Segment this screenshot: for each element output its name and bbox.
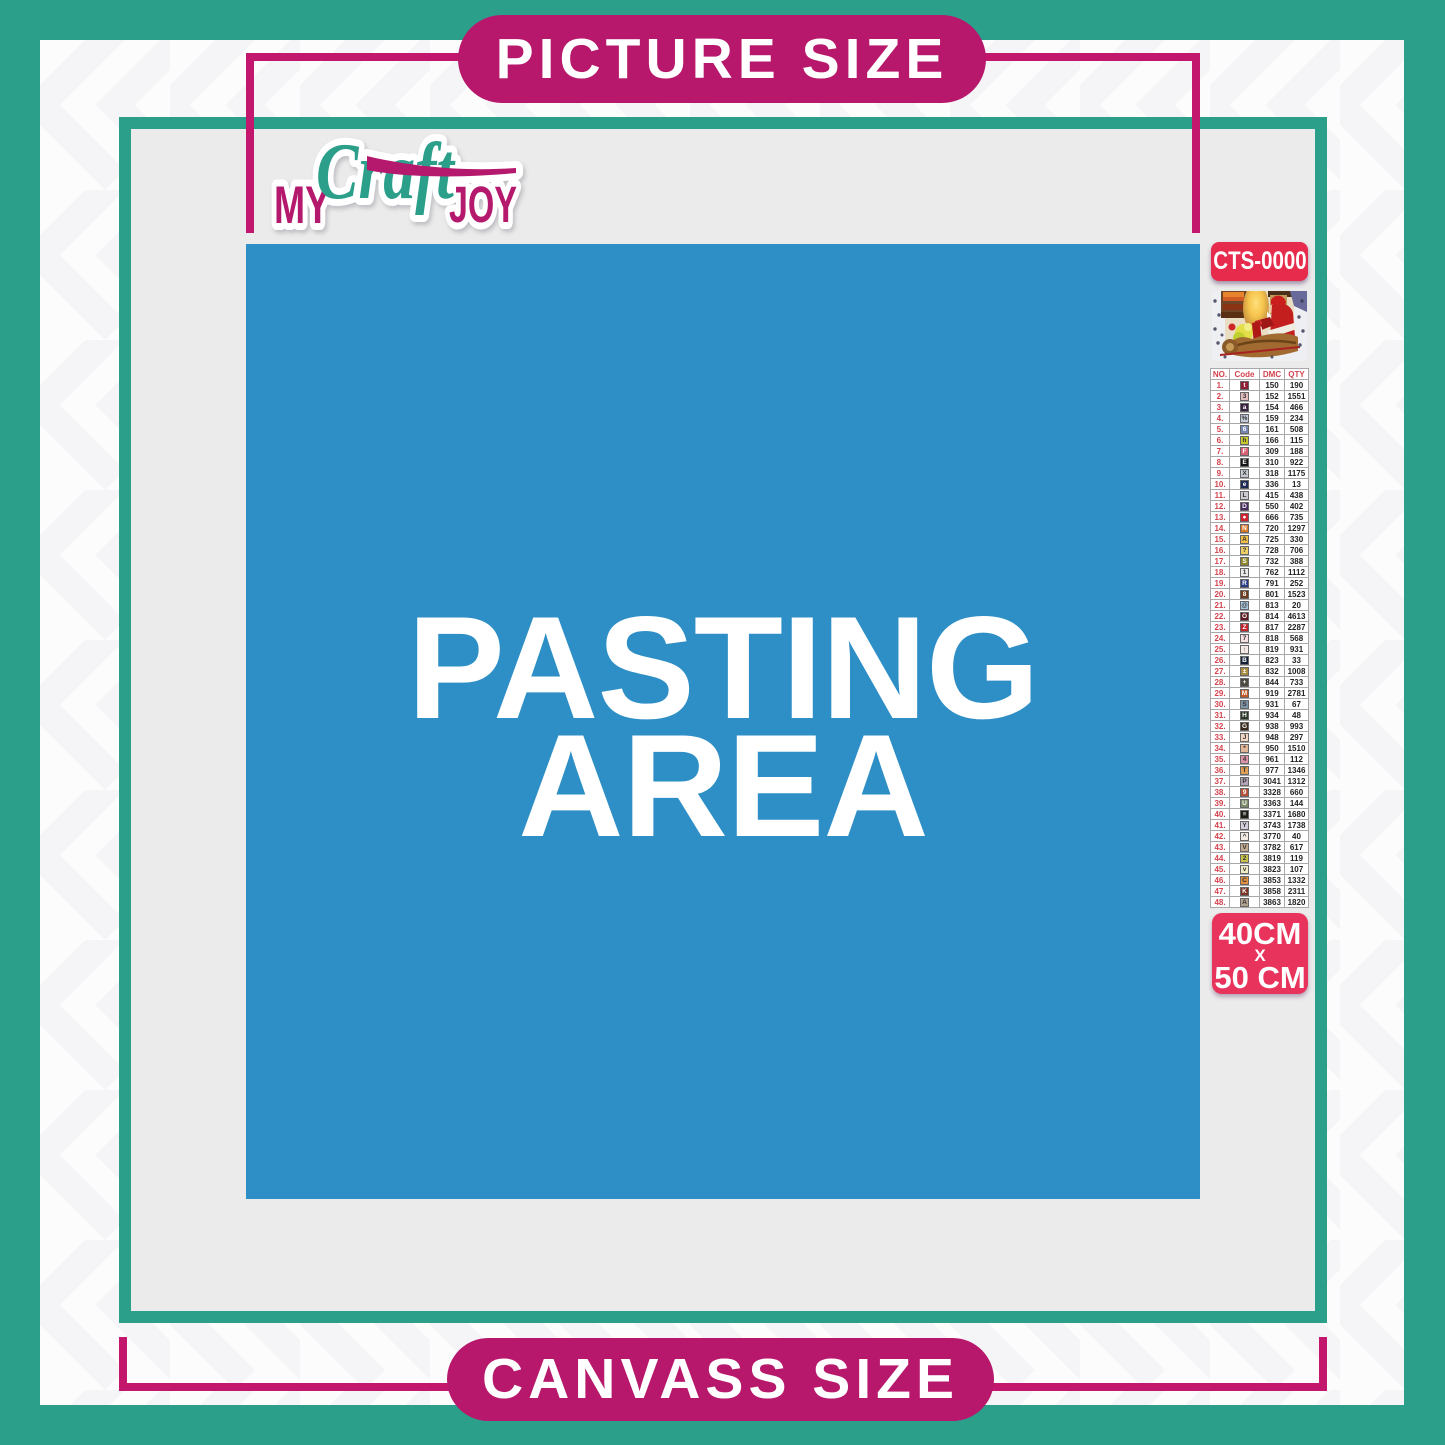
svg-text:JOY: JOY — [449, 176, 517, 233]
